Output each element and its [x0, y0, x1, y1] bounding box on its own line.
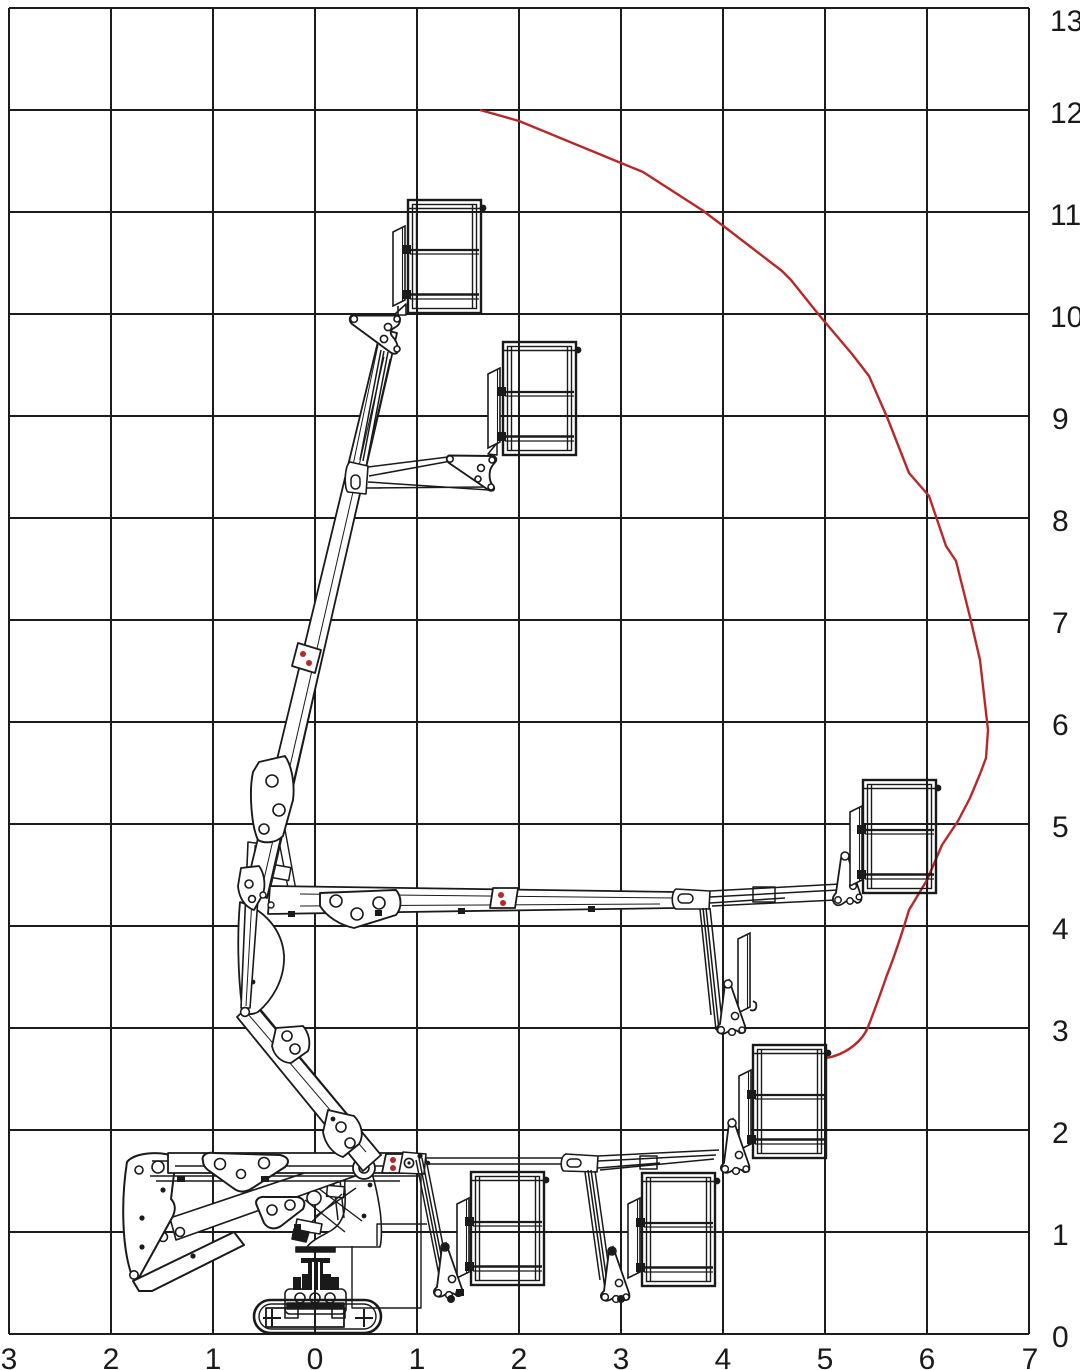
svg-text:1: 1: [1052, 1219, 1069, 1252]
svg-text:3: 3: [1, 1343, 18, 1370]
svg-text:13: 13: [1050, 5, 1080, 38]
svg-text:3: 3: [613, 1343, 630, 1370]
svg-text:0: 0: [307, 1343, 324, 1370]
svg-text:12: 12: [1050, 97, 1080, 130]
svg-text:4: 4: [1052, 913, 1069, 946]
svg-text:11: 11: [1050, 199, 1080, 232]
svg-text:9: 9: [1052, 403, 1069, 436]
svg-text:6: 6: [1052, 709, 1069, 742]
svg-text:2: 2: [103, 1343, 120, 1370]
svg-text:5: 5: [817, 1343, 834, 1370]
svg-text:1: 1: [409, 1343, 426, 1370]
svg-text:0: 0: [1052, 1321, 1069, 1354]
svg-text:1: 1: [205, 1343, 222, 1370]
svg-text:2: 2: [511, 1343, 528, 1370]
svg-text:2: 2: [1052, 1117, 1069, 1150]
svg-text:4: 4: [715, 1343, 732, 1370]
svg-text:7: 7: [1052, 607, 1069, 640]
svg-text:10: 10: [1050, 301, 1080, 334]
svg-text:7: 7: [1022, 1343, 1039, 1370]
svg-text:5: 5: [1052, 811, 1069, 844]
svg-text:3: 3: [1052, 1015, 1069, 1048]
svg-text:8: 8: [1052, 505, 1069, 538]
svg-text:6: 6: [919, 1343, 936, 1370]
